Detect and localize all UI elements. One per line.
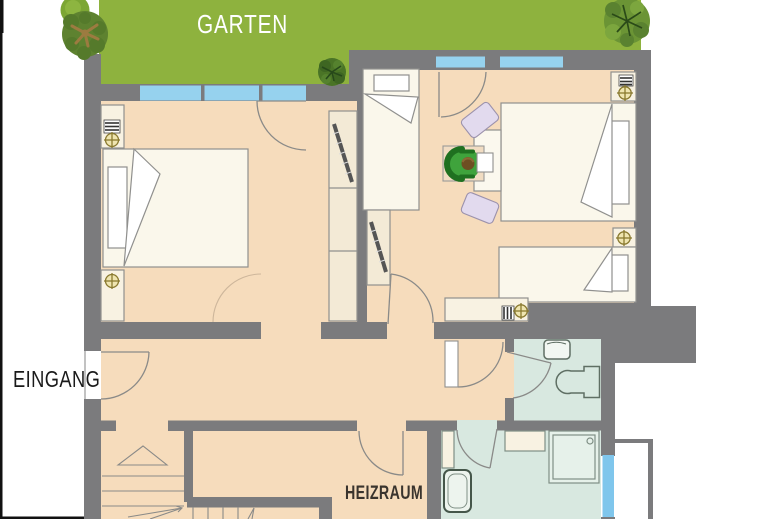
svg-text:EINGANG: EINGANG bbox=[13, 367, 100, 393]
svg-text:HEIZRAUM: HEIZRAUM bbox=[345, 482, 423, 503]
svg-text:GARTEN: GARTEN bbox=[197, 10, 288, 39]
